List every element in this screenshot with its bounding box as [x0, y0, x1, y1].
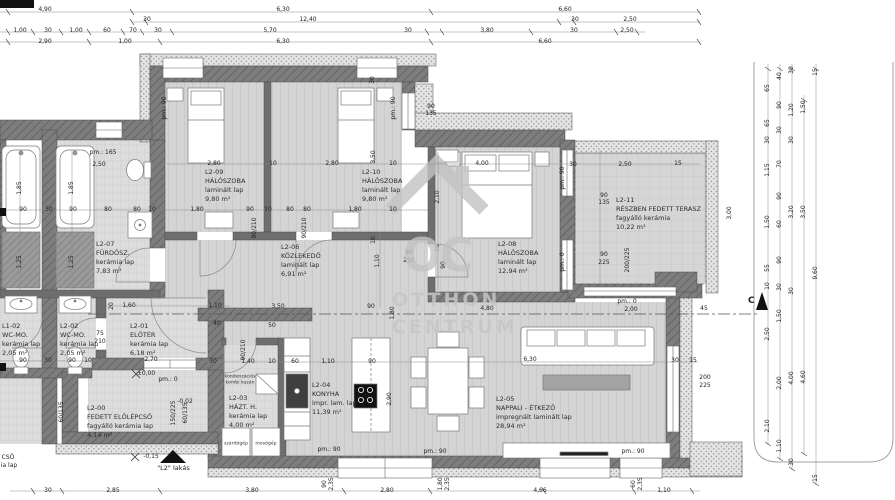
dim-label: 90: [777, 192, 783, 200]
dim-label: 90: [69, 207, 77, 213]
dim-label: 10: [264, 207, 272, 213]
dim-label: 90/210: [241, 339, 247, 360]
dim-label: 4,00: [475, 161, 488, 167]
dim-label: pm.: 90: [423, 449, 446, 455]
dim-label: 30: [789, 66, 795, 74]
dim-label: 2,00: [777, 376, 783, 389]
watermark-monogram: OC: [402, 228, 472, 282]
dim-label: 30: [765, 136, 771, 144]
dim-label: 2,35: [638, 477, 644, 490]
chair: [437, 416, 459, 431]
dim-label: 2,10: [435, 190, 441, 203]
dim-label: 200/225: [625, 248, 631, 273]
dim-label: 1,00: [69, 28, 82, 34]
dim-label: 80: [133, 207, 141, 213]
floor-plan: 4,906,306,603012,40302,501,00301,0060703…: [0, 0, 895, 500]
dim-label: 2,50: [765, 327, 771, 340]
dim-label: 80: [303, 207, 311, 213]
dim-label: 2,00: [624, 307, 637, 313]
terrace-sliding-door: [584, 287, 676, 296]
dim-label: 1,80: [348, 207, 361, 213]
dim-label: 90: [19, 358, 27, 364]
dim-label: 135: [425, 111, 436, 117]
dim-label: 1,25: [17, 255, 23, 268]
dim-label: 1,80: [190, 207, 203, 213]
dim-label: 15: [813, 474, 819, 482]
dim-label: 10: [389, 161, 397, 167]
room-label-l2-04: L2-04KONYHAimpr. lam. lap11,39 m²: [312, 381, 357, 417]
dim-label: 30: [44, 28, 52, 34]
dim-label: 3,80: [245, 488, 258, 494]
dim-label: 20: [109, 302, 115, 310]
dim-label: 1,00: [13, 28, 26, 34]
dim-label: 2,80: [380, 488, 393, 494]
dim-label: 1,20: [789, 103, 795, 116]
chair: [469, 387, 484, 408]
dim-label: 90: [368, 359, 376, 365]
dim-label: 60/135: [59, 401, 65, 422]
dim-label: 80: [286, 207, 294, 213]
dim-label: 1,60: [122, 303, 135, 309]
dim-label: 4,00: [789, 371, 795, 384]
dim-label: CSŐ: [2, 455, 15, 461]
dim-label: 10: [371, 236, 377, 244]
dim-label: 50: [268, 323, 276, 329]
dim-label: 10: [268, 359, 276, 365]
room-label-l1-02: L1-02WC-MO.kerámia lap2,05 m²: [2, 322, 40, 358]
dim-label: 12,40: [299, 17, 316, 23]
dim-label: 1,50: [801, 100, 807, 113]
dim-label: 65: [765, 84, 771, 92]
dim-label: 55: [765, 264, 771, 272]
dim-label: 45: [700, 306, 708, 312]
dim-label: 60: [777, 220, 783, 228]
watermark-line2: CENTRUM: [392, 316, 496, 338]
dim-label: pm.: 165: [90, 150, 117, 156]
dim-label: pm.: 90: [391, 96, 397, 119]
dim-label: 30: [143, 17, 151, 23]
dim-label: 150/225: [171, 401, 177, 426]
dim-label: 2,85: [106, 488, 119, 494]
dim-label: 90: [246, 207, 254, 213]
dim-label: 1,10: [777, 439, 783, 452]
dim-label: pm.: 90: [162, 96, 168, 119]
dim-label: 3,50: [371, 150, 377, 163]
section-arrow: [756, 292, 768, 310]
dim-label: 15: [674, 161, 682, 167]
dim-label: 30: [777, 126, 783, 134]
dim-label: 10: [84, 358, 92, 364]
dim-label: 135: [598, 200, 609, 206]
cooktop: [354, 384, 377, 408]
dim-label: pm.: 90: [317, 447, 340, 453]
dim-label: 40: [213, 321, 221, 327]
dim-label: 1,50: [765, 215, 771, 228]
dim-label: 2,50: [618, 162, 631, 168]
room-label-l2-02: L2-02WC-MO.kerámia lap2,05 m²: [60, 322, 98, 358]
dim-label: 10: [389, 207, 397, 213]
room-label-l2-01: L2-01ELŐTÉRkerámia lap6,18 m²: [130, 322, 168, 358]
dim-label: 90: [19, 207, 27, 213]
dim-label: 30: [570, 28, 578, 34]
dim-label: 2,90: [38, 39, 51, 45]
dim-label: 3,00: [727, 206, 733, 219]
dim-label: 60/135: [183, 402, 189, 423]
dim-label: 30: [370, 76, 376, 84]
watermark-line1: OTTHON: [392, 289, 496, 311]
dim-label: 1,25: [69, 255, 75, 268]
dresser: [333, 212, 359, 228]
dim-label: 90/210: [302, 217, 308, 238]
nightstand: [167, 88, 183, 101]
dim-label: pm.: 90: [621, 449, 644, 455]
dim-label: ia lap: [1, 463, 17, 469]
dim-label: 6,30: [276, 39, 289, 45]
dim-label: 30: [789, 136, 795, 144]
dim-label: ±0,00: [137, 371, 155, 377]
dim-label: 90: [600, 252, 608, 258]
dim-label: 6,30: [523, 357, 536, 363]
room-label-l2-10: L2-10HÁLÓSZOBAlaminált lap9,80 m²: [362, 168, 402, 204]
toilet: [144, 162, 151, 178]
party-wall: [42, 130, 57, 444]
chair: [411, 387, 426, 408]
dim-label: 70: [129, 28, 137, 34]
dim-label: 3,50: [801, 205, 807, 218]
dim-label: 30: [154, 28, 162, 34]
dim-label: 70: [777, 160, 783, 168]
dim-label: 6,60: [558, 7, 571, 13]
dim-label: 3,50: [271, 304, 284, 310]
dim-label: 3,80: [480, 28, 493, 34]
dim-label: 6,30: [276, 7, 289, 13]
dim-label: 1,15: [765, 163, 771, 176]
dim-label: 30: [44, 358, 52, 364]
room-label-l2-06: L2-06KÖZLEKEDŐlaminált lap6,91 m²: [281, 243, 321, 279]
dresser: [205, 212, 233, 228]
dim-label: 1,10: [321, 359, 334, 365]
dim-label: pm.: 0: [158, 377, 177, 383]
dim-label: 10: [269, 161, 277, 167]
dim-label: 10: [148, 207, 156, 213]
dim-label: 30: [404, 28, 412, 34]
room-label-l2-09: L2-09HÁLÓSZOBAlaminált lap9,80 m²: [205, 168, 245, 204]
dim-label: 30: [569, 162, 577, 168]
dim-label: 1,85: [69, 181, 75, 194]
dim-label: 30: [45, 207, 53, 213]
dim-label: 2,50: [92, 162, 105, 168]
dim-label: 2,50: [623, 17, 636, 23]
chair: [411, 357, 426, 378]
dim-label: pm.: 0: [617, 299, 636, 305]
dim-label: 30: [777, 283, 783, 291]
boiler-label: kondenzációskombi kazán: [224, 375, 255, 386]
dim-label: 4,66: [533, 488, 546, 494]
dim-label: 2,80: [207, 161, 220, 167]
dim-label: 1,50: [777, 309, 783, 322]
dim-label: 1,00: [118, 39, 131, 45]
dim-label: 40: [777, 72, 783, 80]
dim-label: 9,60: [813, 266, 819, 279]
dim-label: 1,10: [375, 254, 381, 267]
dim-label: 30: [209, 359, 217, 365]
dim-label: 30: [571, 17, 579, 23]
dim-label: 15: [689, 358, 697, 364]
dim-label: 90: [68, 358, 76, 364]
dim-label: 2,35: [445, 477, 451, 490]
tv: [560, 452, 608, 456]
room-label-l2-11: L2-11RÉSZBEN FEDETT TERASZfagyálló kerám…: [616, 196, 701, 232]
dim-label: 30: [789, 287, 795, 295]
room-label-l2-08: L2-08HÁLÓSZOBAlaminált lap12,94 m²: [498, 240, 538, 276]
dim-label: 1,10: [657, 488, 670, 494]
dim-label: 6,60: [538, 39, 551, 45]
chair: [469, 357, 484, 378]
dining-table: [428, 348, 468, 414]
dim-label: 1,10: [208, 303, 221, 309]
dim-label: 90: [367, 304, 375, 310]
dim-label: 30: [789, 458, 795, 466]
dim-label: 2,80: [325, 161, 338, 167]
bathtub: [56, 146, 94, 228]
site-lines: [754, 62, 893, 462]
dim-label: 2,10: [765, 419, 771, 432]
coffee-table: [543, 375, 630, 390]
dim-label: 225: [598, 260, 609, 266]
room-label-l2-05: L2-05NAPPALI - ÉTKEZŐimpregnált laminált…: [496, 395, 572, 431]
dim-label: 60: [103, 28, 111, 34]
shower: [56, 232, 94, 288]
dim-label: 2,50: [620, 28, 633, 34]
room-label-l2-00: L2-00FEDETT ELŐLÉPCSŐfagyálló kerámia la…: [87, 404, 153, 440]
dim-label: 80: [104, 207, 112, 213]
corner-mark: [0, 0, 34, 8]
dim-label: 2,35: [329, 477, 335, 490]
dim-label: 60: [291, 359, 299, 365]
dim-label: 4,90: [38, 7, 51, 13]
dim-label: 65: [765, 119, 771, 127]
wall-bath-top: [0, 120, 152, 140]
dim-label: 200: [699, 375, 710, 381]
dim-label: 3,20: [789, 205, 795, 218]
dim-label: 15: [813, 68, 819, 76]
dim-label: 90: [777, 256, 783, 264]
dim-label: -0,15: [143, 454, 159, 460]
room-label-l2-03: L2-03HÁZT. H.kerámia lap4,00 m²: [229, 394, 267, 430]
dim-label: 30: [671, 358, 679, 364]
dim-label: 90/210: [252, 217, 258, 238]
room-label-l2-07: L2-07FÜRDŐSZ.kerámia lap7,83 m²: [96, 240, 134, 276]
dim-label: pm.: 90: [560, 166, 566, 189]
unit-label: "L2" lakás: [136, 464, 211, 472]
dryer-label: szárítógép: [224, 441, 248, 447]
dim-label: pm.: 0: [560, 252, 566, 271]
section-letter: C: [748, 296, 755, 306]
dim-label: 1,85: [17, 181, 23, 194]
dim-label: 90: [777, 101, 783, 109]
dim-label: 5,70: [263, 28, 276, 34]
dim-label: 30: [44, 488, 52, 494]
dim-label: 225: [699, 383, 710, 389]
dim-label: 2,90: [387, 392, 393, 405]
dim-label: 4,60: [801, 370, 807, 383]
washer-label: mosógép: [255, 441, 276, 447]
dim-label: 10: [765, 282, 771, 290]
